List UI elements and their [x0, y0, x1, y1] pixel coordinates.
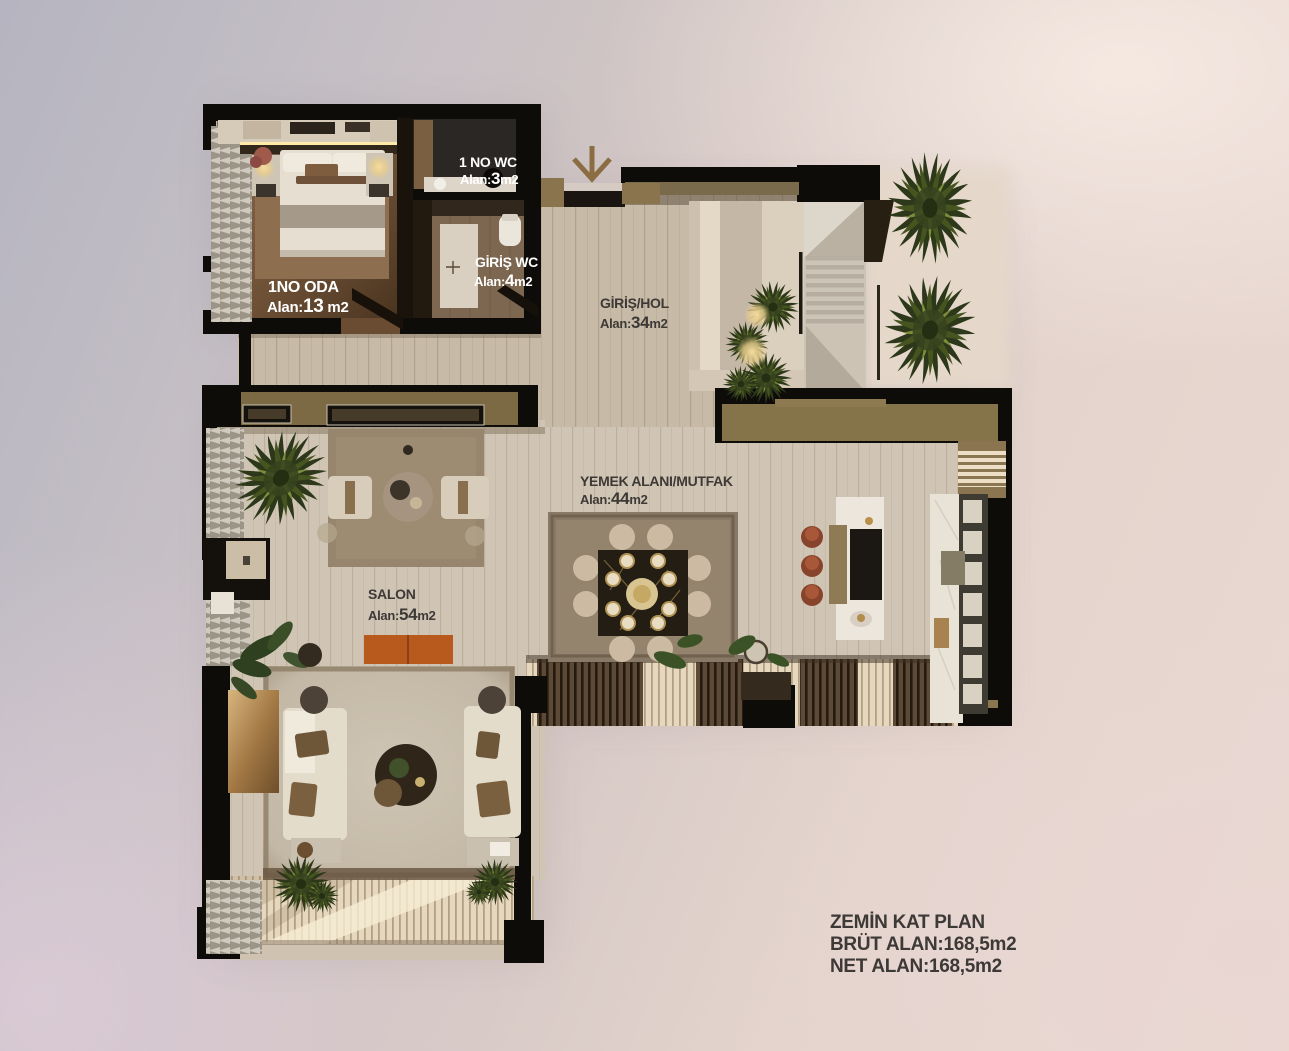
svg-text:Alan:54m2: Alan:54m2: [368, 605, 436, 624]
svg-text:Alan:3m2: Alan:3m2: [460, 169, 518, 188]
svg-text:GİRİŞ/HOL: GİRİŞ/HOL: [600, 295, 670, 311]
svg-text:NET ALAN:168,5m2: NET ALAN:168,5m2: [830, 956, 1002, 977]
svg-text:1 NO WC: 1 NO WC: [459, 154, 517, 170]
svg-text:BRÜT ALAN:168,5m2: BRÜT ALAN:168,5m2: [830, 934, 1016, 955]
svg-text:1NO ODA: 1NO ODA: [268, 279, 340, 296]
svg-text:Alan:13 m2: Alan:13 m2: [267, 296, 349, 317]
svg-text:Alan:44m2: Alan:44m2: [580, 489, 648, 508]
svg-text:YEMEK ALANI/MUTFAK: YEMEK ALANI/MUTFAK: [580, 473, 733, 489]
svg-text:ZEMİN KAT PLAN: ZEMİN KAT PLAN: [830, 912, 985, 933]
svg-text:Alan:4m2: Alan:4m2: [474, 271, 532, 290]
svg-text:Alan:34m2: Alan:34m2: [600, 313, 668, 332]
svg-text:GİRİŞ WC: GİRİŞ WC: [475, 254, 538, 270]
svg-text:SALON: SALON: [368, 586, 416, 602]
